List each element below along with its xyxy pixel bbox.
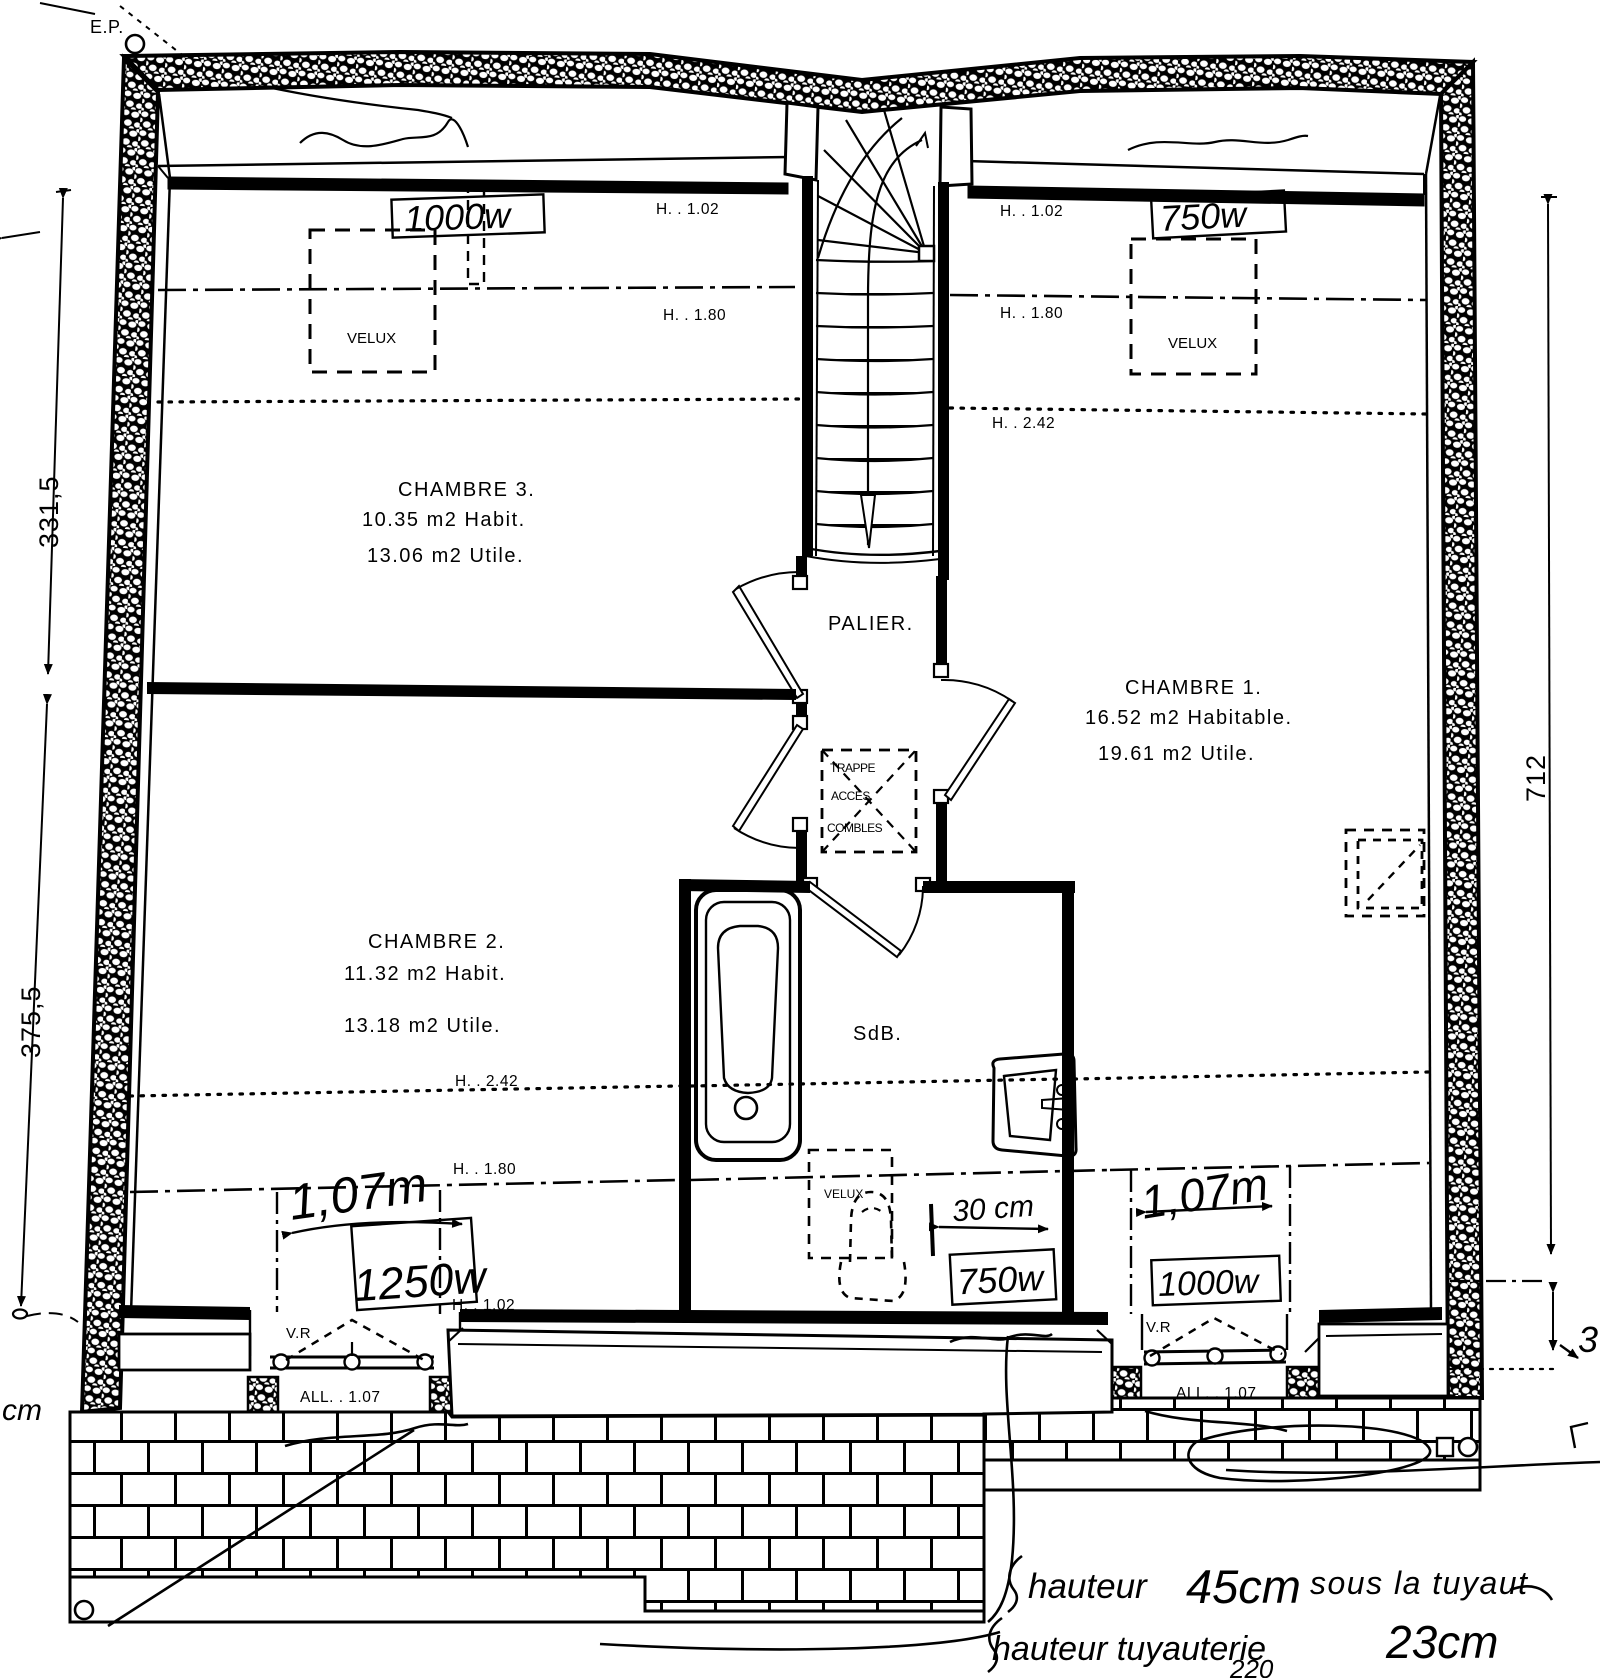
svg-text:16.52 m2 Habitable.: 16.52 m2 Habitable. — [1085, 707, 1293, 729]
svg-text:sous la tuyaut: sous la tuyaut — [1310, 1565, 1528, 1601]
svg-text:H. . 1.80: H. . 1.80 — [663, 307, 726, 324]
svg-text:750w: 750w — [956, 1257, 1046, 1303]
svg-text:10.35 m2 Habit.: 10.35 m2 Habit. — [362, 509, 526, 531]
svg-text:H. . 2.42: H. . 2.42 — [455, 1073, 518, 1090]
svg-text:750w: 750w — [1159, 193, 1249, 239]
svg-text:H. . 1.02: H. . 1.02 — [1000, 203, 1063, 220]
svg-text:H. . 1.80: H. . 1.80 — [453, 1161, 516, 1178]
svg-text:1000w: 1000w — [403, 194, 512, 239]
svg-text:1250w: 1250w — [352, 1251, 490, 1311]
svg-text:19.61 m2 Utile.: 19.61 m2 Utile. — [1098, 743, 1255, 765]
svg-text:E.P.: E.P. — [90, 17, 124, 37]
svg-text:ALL. . 1.07: ALL. . 1.07 — [300, 1389, 380, 1406]
svg-text:13.18 m2 Utile.: 13.18 m2 Utile. — [344, 1015, 501, 1037]
svg-text:H. . 1.02: H. . 1.02 — [656, 201, 719, 218]
svg-text:3: 3 — [1578, 1319, 1598, 1360]
svg-text:H. . 2.42: H. . 2.42 — [992, 415, 1055, 432]
svg-text:375,5: 375,5 — [16, 985, 46, 1058]
svg-text:SdB.: SdB. — [853, 1023, 902, 1045]
svg-text:H. . 1.80: H. . 1.80 — [1000, 305, 1063, 322]
svg-text:hauteur: hauteur — [1028, 1567, 1148, 1606]
svg-text:VELUX: VELUX — [824, 1187, 863, 1201]
svg-text:ACCES: ACCES — [831, 789, 870, 803]
svg-text:712: 712 — [1521, 754, 1551, 802]
svg-text:V.R: V.R — [1146, 1319, 1171, 1336]
svg-text:PALIER.: PALIER. — [828, 613, 914, 635]
svg-text:V.R: V.R — [286, 1325, 311, 1342]
svg-text:VELUX: VELUX — [1168, 335, 1217, 352]
svg-text:331,5: 331,5 — [34, 475, 64, 548]
svg-text:CHAMBRE 3.: CHAMBRE 3. — [398, 479, 535, 501]
svg-text:TRAPPE: TRAPPE — [830, 761, 876, 775]
svg-text:220: 220 — [1229, 1654, 1274, 1678]
svg-text:CHAMBRE 2.: CHAMBRE 2. — [368, 931, 505, 953]
svg-text:ALL. . 1.07: ALL. . 1.07 — [1176, 1385, 1256, 1402]
svg-text:VELUX: VELUX — [347, 330, 396, 347]
svg-text:45cm: 45cm — [1186, 1560, 1301, 1613]
svg-text:13.06 m2 Utile.: 13.06 m2 Utile. — [367, 545, 524, 567]
svg-text:cm: cm — [2, 1394, 42, 1427]
svg-text:hauteur tuyauterie: hauteur tuyauterie — [992, 1630, 1266, 1668]
svg-text:CHAMBRE 1.: CHAMBRE 1. — [1125, 677, 1262, 699]
svg-text:30 cm: 30 cm — [951, 1190, 1035, 1229]
svg-text:1000w: 1000w — [1157, 1262, 1261, 1304]
svg-text:11.32 m2 Habit.: 11.32 m2 Habit. — [344, 963, 506, 985]
svg-text:23cm: 23cm — [1385, 1616, 1498, 1668]
svg-text:COMBLES: COMBLES — [827, 821, 883, 835]
